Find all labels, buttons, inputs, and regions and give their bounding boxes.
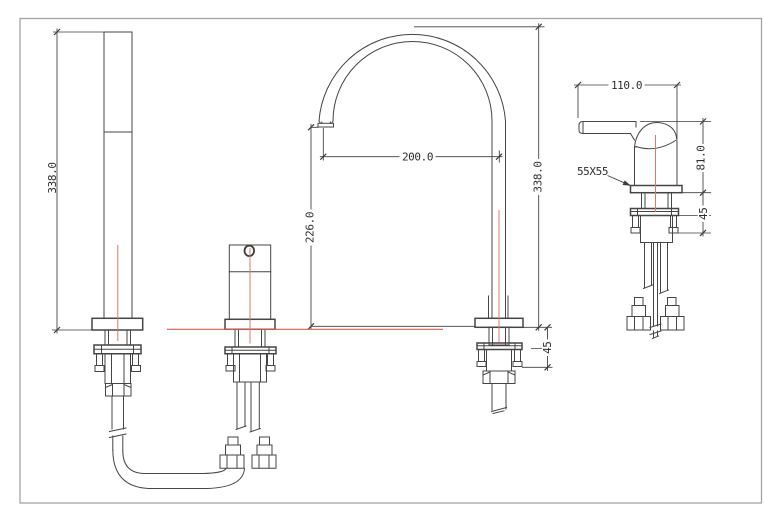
dimension-200-reach: 200.0: [402, 150, 433, 163]
dimension-338-hand-shower: 338.0: [46, 162, 59, 193]
shower-body-under: [105, 354, 131, 384]
spout-clamp-legs: [477, 350, 522, 367]
mixer-hose-connector-left: [627, 298, 651, 331]
dimension-81-body-height: 81.0: [695, 146, 708, 171]
spout-clamp-bar-detail: [477, 343, 522, 350]
hose-connector-left: [220, 437, 244, 468]
technical-drawing-canvas: 338.0 200.0: [0, 0, 764, 525]
hand-shower-view: 338.0: [46, 29, 245, 489]
dimension-45-mixer-deck: 45: [697, 207, 710, 219]
diverter-clamp-bar-detail: [225, 347, 276, 354]
dimension-110-handle: 110.0: [611, 79, 642, 92]
mixer-body-under: [641, 216, 673, 243]
diverter-hoses: [236, 382, 260, 432]
dimension-45-spout-deck: 45: [541, 341, 554, 353]
diverter-valve-view: [220, 245, 276, 468]
hose-connector-right: [252, 437, 276, 468]
spout-lock-nut: [483, 371, 515, 384]
mixer-hose-connector-right: [661, 298, 685, 331]
mixer-flange: [631, 186, 683, 193]
label-55x55-arrowhead: [623, 180, 631, 185]
mixer-clamp-bar-detail: [631, 209, 679, 216]
dimension-226-outlet-height: 226.0: [303, 212, 316, 243]
shower-hose: [113, 450, 245, 489]
mixer-lever-handle: [579, 122, 636, 141]
arch-spout-view: 200.0 226.0 338.0 45: [303, 23, 554, 413]
dimension-338-spout: 338.0: [531, 161, 544, 192]
reference-lines: [118, 135, 656, 344]
spout-supply-pipe: [492, 384, 507, 414]
drawing-frame: [20, 19, 762, 504]
dim-line-338-left: [52, 29, 104, 334]
shower-tail-pipe: [110, 396, 127, 451]
spout-body-under: [487, 350, 512, 372]
shower-lock-nut: [106, 384, 132, 397]
dim-line-110: [574, 85, 681, 139]
mixer-side-view: 110.0 81.0 45 55X55: [574, 79, 711, 339]
label-55x55-flange: 55X55: [577, 165, 608, 178]
dim-line-226: [311, 124, 475, 330]
mixer-clamp-legs: [631, 216, 678, 234]
diverter-knob: [245, 246, 255, 256]
diverter-body-under: [234, 354, 267, 382]
shower-clamp-legs: [95, 354, 141, 372]
mixer-shank: [642, 193, 672, 209]
spout-inner-wall: [333, 41, 492, 318]
shower-clamp-bar-detail: [94, 345, 141, 354]
mixer-hoses: [644, 243, 669, 294]
spout-outer-wall: [319, 34, 506, 318]
faucet-technical-drawing: 338.0 200.0: [0, 0, 764, 525]
